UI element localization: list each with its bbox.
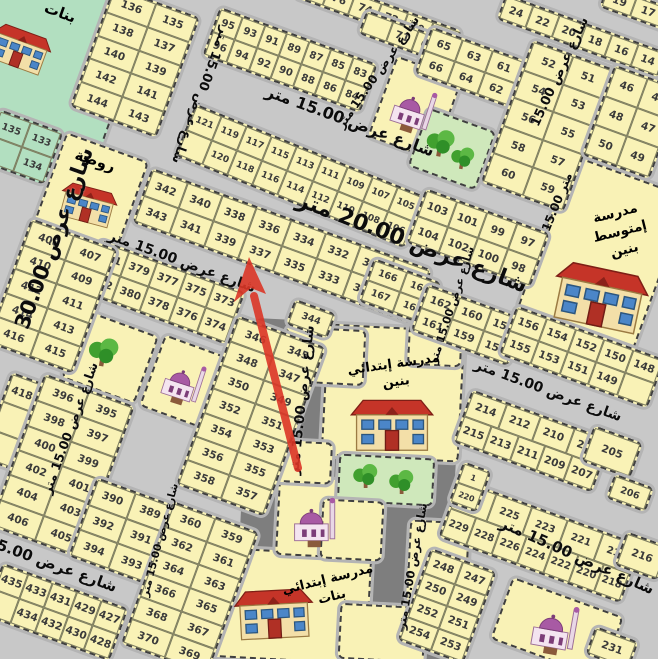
plot-cell: 231	[588, 629, 636, 659]
plot-row: 231	[588, 629, 636, 659]
mosque-icon	[289, 496, 345, 548]
mosque-icon	[524, 597, 591, 659]
plot-cell: 206	[608, 476, 651, 510]
tree-icon	[387, 467, 417, 497]
school-icon	[350, 394, 434, 454]
block-206: 206	[606, 474, 654, 513]
tree-icon	[351, 461, 381, 491]
plot-row: 206	[608, 476, 651, 510]
plot-cell: 17	[630, 0, 658, 27]
map-canvas: 7876747270687169676563616664622422201816…	[0, 0, 658, 659]
tree-icon	[447, 142, 479, 174]
